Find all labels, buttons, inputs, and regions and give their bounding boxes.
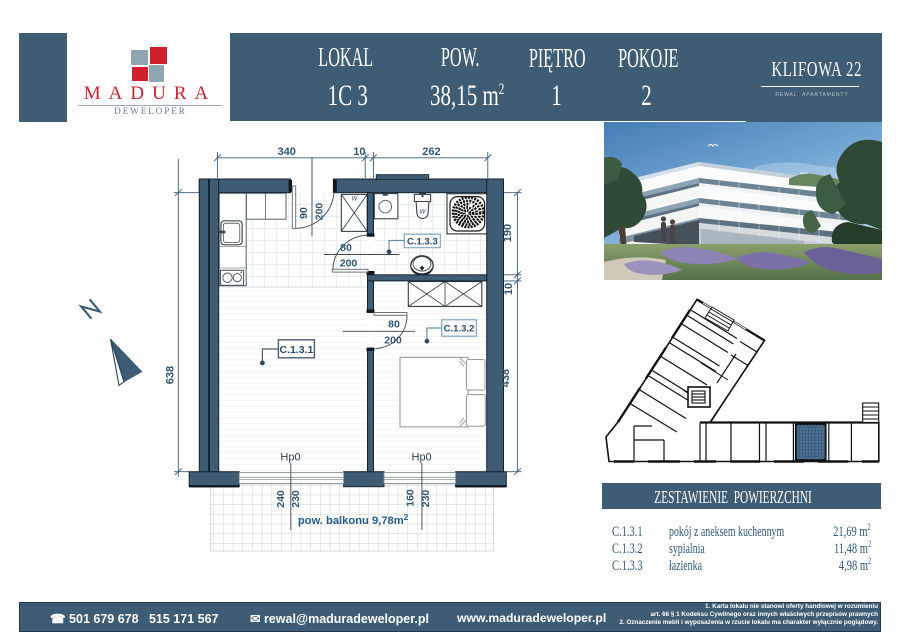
svg-text:200: 200 [314, 203, 326, 221]
svg-text:90: 90 [298, 207, 310, 219]
svg-text:C.1.3.2: C.1.3.2 [444, 324, 475, 335]
svg-text:10: 10 [503, 283, 515, 295]
svg-text:230: 230 [290, 490, 302, 508]
svg-text:C.1.3.3: C.1.3.3 [407, 236, 438, 247]
svg-text:438: 438 [500, 369, 512, 387]
svg-text:262: 262 [422, 146, 440, 158]
svg-text:C.1.3.1: C.1.3.1 [279, 344, 313, 356]
svg-text:200: 200 [340, 258, 358, 270]
svg-text:638: 638 [165, 366, 177, 384]
svg-text:80: 80 [340, 242, 352, 254]
svg-text:10: 10 [353, 146, 365, 158]
svg-text:W: W [419, 209, 426, 216]
svg-text:80: 80 [388, 319, 400, 331]
svg-text:190: 190 [502, 224, 514, 242]
svg-text:pow. balkonu 9,78m2: pow. balkonu 9,78m2 [298, 513, 409, 527]
svg-text:Hp0: Hp0 [412, 452, 432, 464]
svg-text:200: 200 [384, 335, 402, 347]
svg-text:340: 340 [278, 146, 296, 158]
svg-text:160: 160 [405, 489, 417, 507]
svg-text:Hp0: Hp0 [280, 452, 300, 464]
svg-text:230: 230 [420, 490, 432, 508]
svg-text:240: 240 [275, 490, 287, 508]
